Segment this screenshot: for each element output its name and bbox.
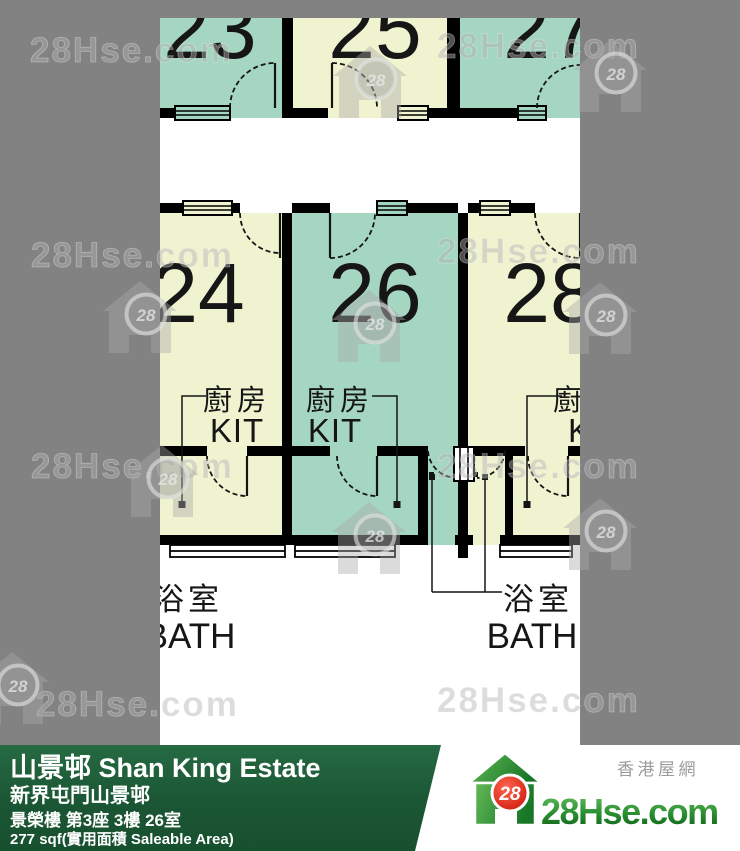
window-unit-24 bbox=[183, 201, 232, 215]
window-unit-25 bbox=[398, 106, 428, 120]
unit-numbers: 23 25 27 24 26 28 bbox=[160, 18, 580, 340]
window-sills bbox=[170, 545, 572, 557]
kitchen-label-en-28: KIT bbox=[568, 412, 580, 449]
window-unit-28 bbox=[480, 201, 510, 215]
svg-text:28: 28 bbox=[136, 306, 156, 325]
svg-text:28: 28 bbox=[596, 307, 616, 326]
footer-bar: 山景邨 Shan King Estate 新界屯門山景邨 景榮樓 第3座 3樓 … bbox=[0, 745, 740, 851]
kitchen-label-en-26: KIT bbox=[308, 412, 362, 449]
kitchen-label-en-24: KIT bbox=[210, 412, 264, 449]
site-logo: 28 香港屋網 28Hse.com bbox=[455, 745, 740, 845]
svg-text:28: 28 bbox=[8, 677, 28, 696]
unit-number-26: 26 bbox=[328, 246, 421, 340]
unit-number-23: 23 bbox=[163, 18, 256, 76]
duct-symbol bbox=[454, 447, 474, 481]
window-unit-27 bbox=[518, 106, 546, 120]
bath-label-en-left: BATH bbox=[160, 617, 235, 656]
unit-number-28: 28 bbox=[503, 246, 580, 340]
bath-label-cn-right: 浴室 bbox=[503, 582, 573, 617]
logo-badge-number: 28 bbox=[498, 784, 521, 805]
window-unit-23 bbox=[175, 106, 230, 120]
svg-text:28: 28 bbox=[606, 65, 626, 84]
unit-number-27: 27 bbox=[503, 18, 580, 76]
district-line: 新界屯門山景邨 bbox=[10, 779, 150, 808]
watermark-house-icon: 28 bbox=[573, 40, 647, 112]
unit-number-25: 25 bbox=[328, 18, 421, 76]
logo-site-name: 28Hse.com bbox=[541, 791, 718, 832]
unit-number-24: 24 bbox=[160, 246, 245, 340]
svg-text:28: 28 bbox=[596, 523, 616, 542]
logo-tagline: 香港屋網 bbox=[617, 760, 699, 779]
watermark-house-icon: 28 bbox=[0, 652, 49, 724]
saleable-area-line: 277 sqf(實用面積 Saleable Area) bbox=[10, 828, 234, 849]
logo-house-icon: 28 bbox=[469, 753, 541, 825]
window-symbols bbox=[175, 106, 546, 215]
floor-plan-image: 23 25 27 24 26 28 廚房 KIT 廚房 KIT 廚房 KIT 浴… bbox=[160, 18, 580, 745]
bath-label-en-right: BATH bbox=[487, 617, 578, 656]
window-unit-26 bbox=[377, 201, 407, 215]
floor-plan-svg: 23 25 27 24 26 28 廚房 KIT 廚房 KIT 廚房 KIT 浴… bbox=[160, 18, 580, 745]
screenshot-root: 23 25 27 24 26 28 廚房 KIT 廚房 KIT 廚房 KIT 浴… bbox=[0, 0, 740, 851]
bath-label-cn-left: 浴室 bbox=[160, 582, 223, 617]
